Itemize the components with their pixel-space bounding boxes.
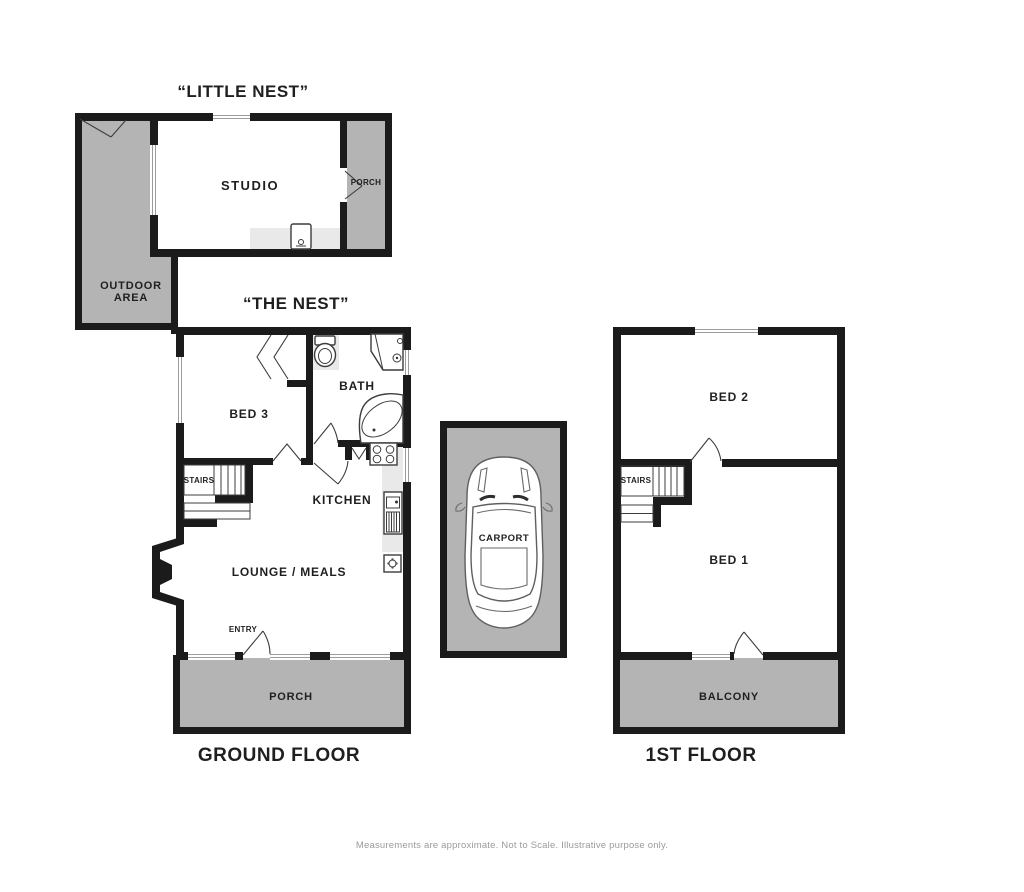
first-floor-walls [613, 327, 845, 660]
ground-right-window-lower [403, 448, 411, 482]
balcony-door [734, 632, 763, 655]
first-floor-unit [613, 327, 845, 734]
the-nest-title: “THE NEST” [243, 294, 349, 313]
ground-right-window-upper [403, 350, 411, 375]
bathtub [355, 394, 408, 445]
bed2-label: BED 2 [709, 390, 748, 404]
shower [371, 334, 403, 370]
studio-sink [291, 224, 311, 249]
kitchen-label: KITCHEN [313, 493, 372, 507]
studio-label: STUDIO [221, 178, 279, 193]
outdoor-area-label-line1: OUTDOOR [100, 280, 162, 292]
entry-door [243, 631, 270, 655]
bed1-label: BED 1 [709, 553, 748, 567]
balcony-label: BALCONY [699, 691, 759, 703]
bay-window [152, 536, 184, 608]
stove [370, 443, 397, 465]
lounge-label: LOUNGE / MEALS [232, 565, 347, 579]
closet-door [352, 448, 366, 459]
bath-door [314, 423, 338, 444]
first-floor-stairs [621, 466, 684, 522]
ground-stairs [184, 465, 250, 519]
little-nest-title: “LITTLE NEST” [177, 82, 308, 101]
bed2-door [690, 438, 721, 462]
floorplan-svg: “LITTLE NEST” STUDIO PORCH OUTDOOR AREA … [0, 0, 1024, 892]
kitchen-sink [384, 492, 402, 534]
hall-door [314, 461, 348, 484]
bed3-label: BED 3 [229, 407, 268, 421]
studio-left-window [150, 145, 158, 215]
entry-label: ENTRY [229, 625, 258, 634]
bed1-front-window [692, 652, 730, 660]
bed3-bifold-doors [257, 335, 301, 461]
ground-stairs-label: STAIRS [184, 476, 215, 485]
first-stairs-label: STAIRS [621, 476, 652, 485]
studio-top-window [213, 113, 250, 121]
bed2-top-window [695, 327, 758, 335]
first-floor-label: 1ST FLOOR [645, 745, 756, 766]
ground-front-windows [188, 652, 390, 660]
ground-floor-label: GROUND FLOOR [198, 745, 360, 766]
outdoor-area-label-line2: AREA [114, 292, 148, 304]
bath-label: BATH [339, 379, 375, 393]
ground-left-window [176, 357, 184, 423]
little-nest-porch-label: PORCH [351, 178, 381, 187]
ground-porch-label: PORCH [269, 691, 313, 703]
disclaimer-note: Measurements are approximate. Not to Sca… [356, 840, 668, 851]
toilet [315, 336, 336, 367]
kitchen-appliance [384, 555, 401, 572]
floorplan-canvas: “LITTLE NEST” STUDIO PORCH OUTDOOR AREA … [0, 0, 1024, 892]
ground-floor-walls [176, 327, 411, 660]
carport-label: CARPORT [479, 533, 529, 544]
